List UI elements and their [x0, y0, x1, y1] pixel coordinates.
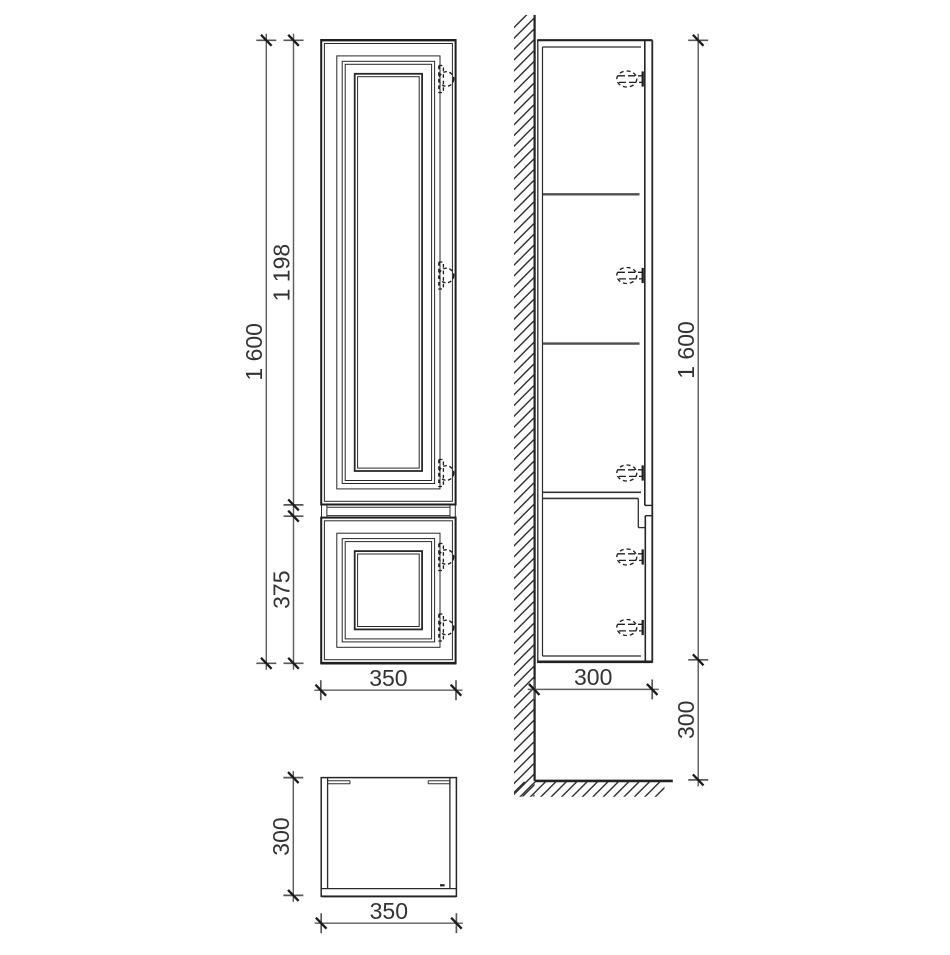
- svg-text:300: 300: [673, 701, 699, 739]
- svg-text:350: 350: [369, 665, 407, 691]
- svg-text:375: 375: [268, 571, 294, 609]
- svg-text:1 600: 1 600: [673, 321, 699, 379]
- svg-text:300: 300: [574, 664, 612, 690]
- svg-text:350: 350: [370, 898, 408, 924]
- svg-text:300: 300: [268, 817, 294, 855]
- svg-text:1 600: 1 600: [241, 323, 267, 381]
- svg-text:1 198: 1 198: [268, 244, 294, 302]
